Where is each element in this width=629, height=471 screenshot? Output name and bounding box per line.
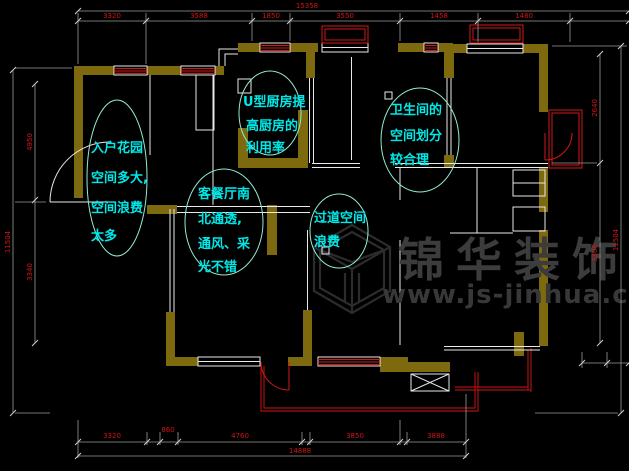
dimension-label: 3320 [103,432,121,440]
dimension-label: 860 [161,426,174,434]
dimension-label: 2640 [591,99,599,117]
watermark-url: www.js-jinhua.com [382,280,629,310]
dimension-label: 1480 [515,12,533,20]
dimension-label: 4950 [26,133,34,151]
annotation-text: 过道空间 [314,210,366,226]
annotation-text: 空间多大, [91,170,148,186]
annotation-text: 较合理 [390,152,429,168]
dimension-label: 3850 [346,432,364,440]
dimension-label: 11504 [612,228,620,251]
annotation-text: 入户花园 [91,140,143,156]
annotation-text: 浪费 [314,234,340,250]
dimension-label: 11504 [4,230,12,253]
floor-plan-canvas: 入户花园 空间多大, 空间浪费 太多 U型厨房提 高厨房的 利用率 卫生间的 空… [0,0,629,471]
annotation-text: 卫生间的 [390,102,442,118]
annotation-text: U型厨房提 [243,94,307,110]
annotation-text: 光不错 [197,259,237,275]
annotation-text: 高厨房的 [246,118,298,134]
dimension-label: 1850 [262,12,280,20]
dimension-label: 3340 [26,263,34,281]
dimension-label: 3550 [336,12,354,20]
annotation-text: 空间浪费 [91,200,143,216]
dimension-label: 3320 [103,12,121,20]
dimension-label: 4760 [231,432,249,440]
dimension-label: 14888 [289,447,311,455]
annotation-text: 客餐厅南 [198,186,250,202]
annotation-text: 北通透, [198,211,242,227]
dimension-label: 3300 [591,244,599,262]
annotation-text: 利用率 [246,140,285,156]
annotation-text: 太多 [90,228,117,244]
dimension-label: 15358 [296,2,318,10]
annotation-text: 通风、采 [198,236,251,252]
dimension-label: 3888 [427,432,445,440]
annotation-text: 空间划分 [390,128,442,144]
dimension-label: 1458 [430,12,448,20]
dimension-label: 3588 [190,12,208,20]
